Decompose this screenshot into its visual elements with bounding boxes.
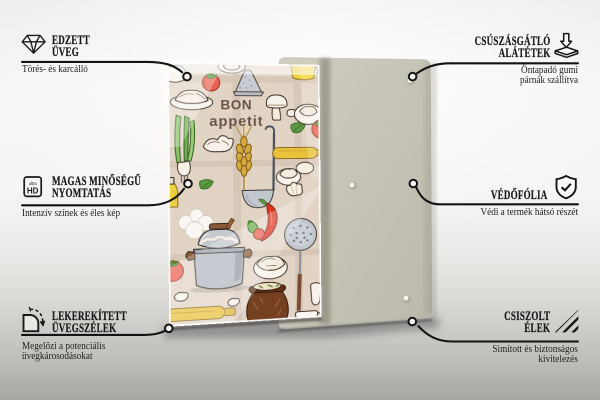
svg-text:ultra: ultra xyxy=(29,181,38,186)
svg-text:HD: HD xyxy=(27,187,39,196)
